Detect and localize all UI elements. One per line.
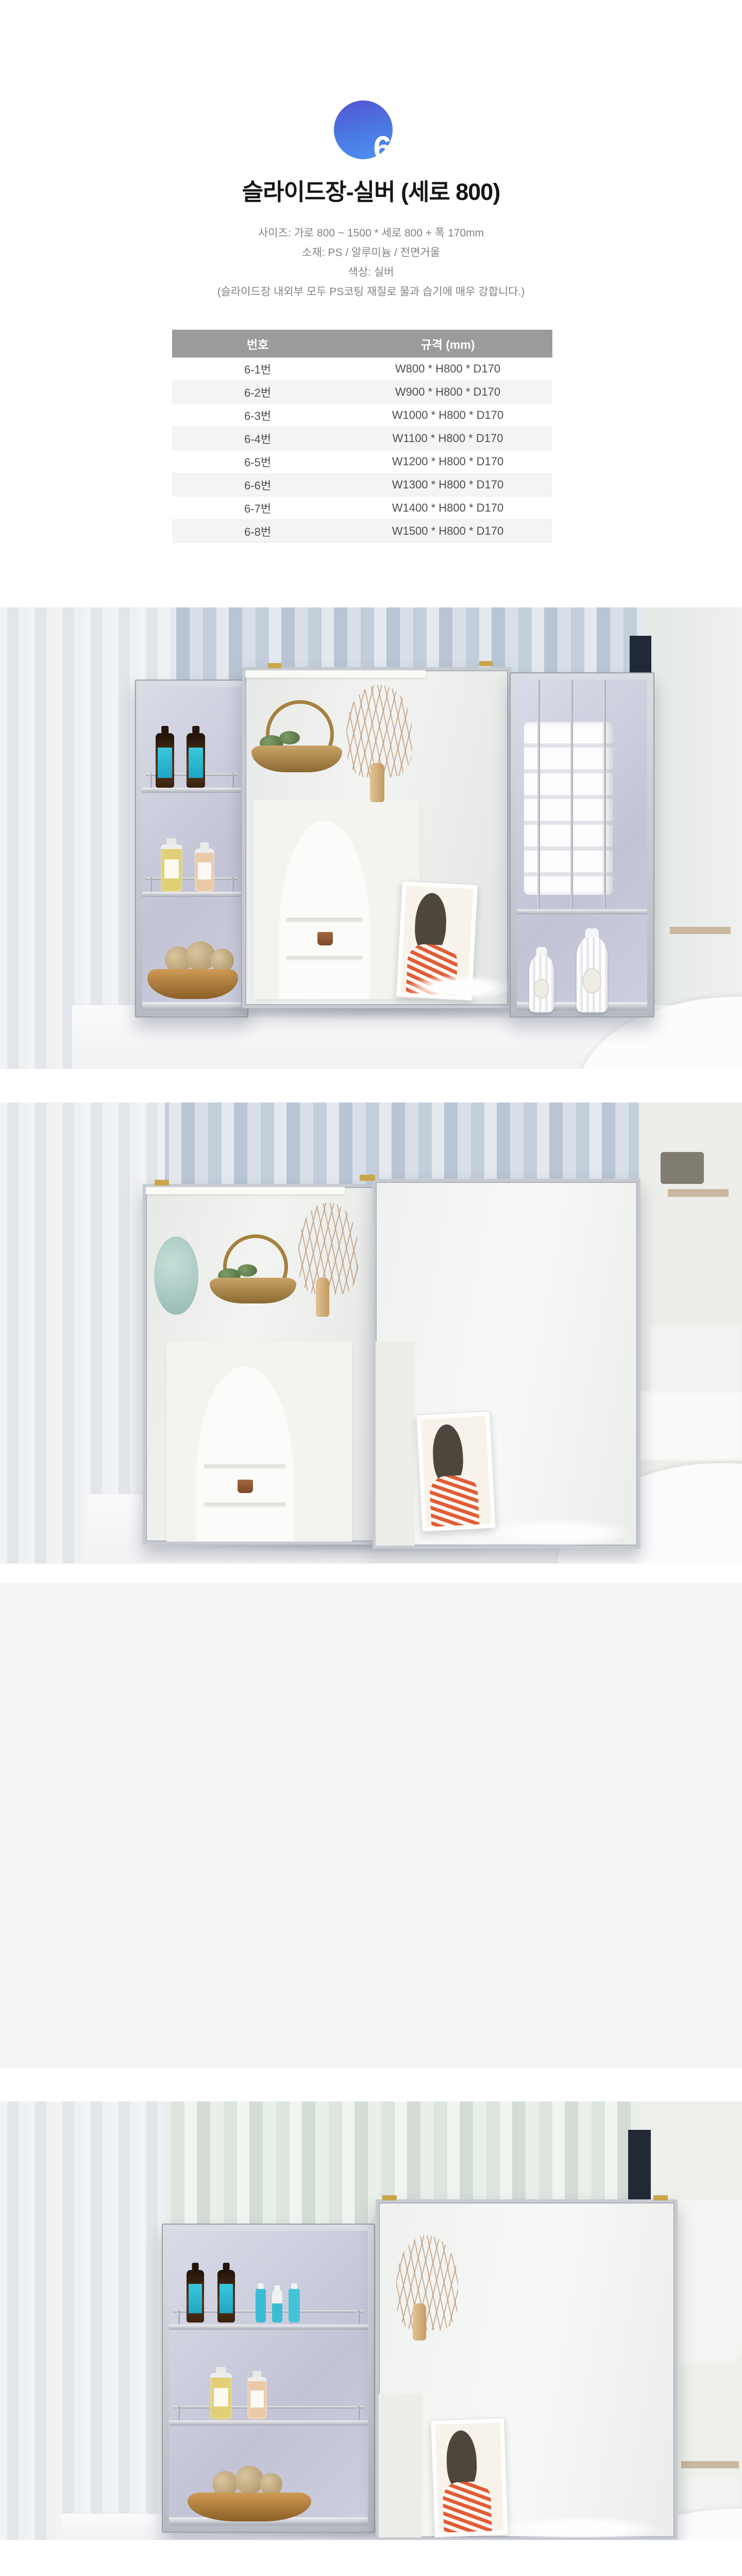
gold-hinge [653, 2195, 668, 2200]
number-badge: 6 [334, 100, 393, 159]
cell-size: W1200 * H800 * D170 [343, 455, 552, 468]
potted-plant [238, 1480, 253, 1493]
oval-mirror-reflection [154, 1236, 198, 1315]
table-row: 6-6번W1300 * H800 * D170 [172, 473, 552, 497]
open-shelf-unit-right [510, 672, 654, 1018]
product-detail-page: 6 슬라이드장-실버 (세로 800) 사이즈: 가로 800 ~ 1500 *… [0, 0, 742, 2576]
page-title: 슬라이드장-실버 (세로 800) [0, 173, 742, 207]
gold-hinge [479, 661, 493, 666]
cell-size: W900 * H800 * D170 [343, 385, 552, 399]
wire-rail [173, 2406, 364, 2409]
shelf [169, 2325, 368, 2330]
open-shelf-unit-left [135, 680, 248, 1018]
desc-line-color: 색상: 실버 [0, 263, 742, 282]
product-photo-left-open [0, 2102, 742, 2540]
amber-bottle [217, 2270, 235, 2323]
arch-shelf [286, 918, 363, 921]
cell-size: W1400 * H800 * D170 [343, 501, 552, 515]
mirror-door-left [143, 1184, 377, 1545]
table-row: 6-8번W1500 * H800 * D170 [172, 520, 552, 543]
cell-no: 6-1번 [172, 361, 343, 377]
table-row: 6-4번W1100 * H800 * D170 [172, 427, 552, 450]
cell-no: 6-6번 [172, 477, 343, 493]
amber-bottle [187, 733, 205, 788]
peach-bottle [195, 849, 214, 892]
unit-interior [517, 680, 647, 1010]
wooden-bowl [188, 2493, 311, 2521]
gold-hinge [268, 663, 281, 668]
basket-bowl [210, 1278, 296, 1303]
window-frame-dark [628, 2130, 651, 2199]
fur-rug [486, 1520, 630, 1546]
gold-hinge [360, 1175, 375, 1181]
flower-vase [413, 2303, 426, 2341]
picture-art [435, 2422, 503, 2533]
cell-no: 6-8번 [172, 523, 343, 539]
desc-line-material: 소재: PS / 알루미늄 / 전면거울 [0, 243, 742, 263]
ceramic-vase-small [529, 955, 554, 1012]
twine-ball [235, 2466, 264, 2495]
cell-no: 6-5번 [172, 453, 343, 470]
potted-plant [317, 932, 333, 945]
table-row: 6-7번W1400 * H800 * D170 [172, 497, 552, 520]
curtain-sheer-left [0, 2102, 165, 2540]
basket-bowl [251, 745, 342, 772]
towel-rail [570, 680, 573, 909]
mirror-door-right [376, 2199, 678, 2540]
spec-table: 번호 규격 (mm) 6-1번W800 * H800 * D170 6-2번W9… [172, 330, 552, 543]
mantel-ledge [245, 670, 426, 677]
flower-vase [316, 1278, 329, 1317]
table-row: 6-2번W900 * H800 * D170 [172, 381, 552, 404]
badge-number: 6 [373, 131, 392, 164]
amber-bottle [187, 2270, 204, 2323]
shelf [169, 2420, 368, 2426]
unit-interior [142, 687, 241, 1010]
greenery [238, 1264, 257, 1277]
wall-bracket [681, 2461, 739, 2468]
flower-vase [370, 763, 384, 802]
desc-line-size: 사이즈: 가로 800 ~ 1500 * 세로 800 + 폭 170mm [0, 224, 742, 243]
spec-col-number: 번호 [172, 335, 343, 352]
wall-bracket [670, 927, 731, 934]
cell-size: W1500 * H800 * D170 [343, 524, 552, 538]
gold-hinge [155, 1180, 169, 1185]
product-photo-open-both [0, 607, 742, 1069]
open-shelf-unit-left [162, 2224, 375, 2533]
cell-size: W1000 * H800 * D170 [343, 409, 552, 422]
arch-shelf [204, 1502, 285, 1506]
cell-no: 6-2번 [172, 384, 343, 400]
arch-shelf [204, 1464, 285, 1468]
spec-col-size: 규격 (mm) [343, 335, 552, 352]
cell-size: W1100 * H800 * D170 [343, 432, 552, 445]
cell-no: 6-3번 [172, 407, 343, 423]
table-row: 6-3번W1000 * H800 * D170 [172, 404, 552, 427]
ceramic-vase-tall [577, 936, 608, 1012]
mantel-edge-reflection [379, 2393, 422, 2537]
cell-no: 6-7번 [172, 500, 343, 516]
cell-size: W800 * H800 * D170 [343, 362, 552, 376]
cell-size: W1300 * H800 * D170 [343, 478, 552, 492]
table-row: 6-5번W1200 * H800 * D170 [172, 450, 552, 473]
mirror-door-center [242, 667, 511, 1008]
picture-frame [416, 1411, 496, 1532]
towel-rail [603, 680, 606, 909]
white-drape [672, 2199, 742, 2364]
dried-flowers [396, 2235, 458, 2330]
wall-bracket [668, 1189, 729, 1197]
teal-spray-bottle [272, 2291, 282, 2323]
wire-rail [145, 877, 238, 880]
yellow-bottle [210, 2373, 232, 2419]
dimension-diagram-section: 1200 800 220 220 220 580 340 580 340 580… [0, 1583, 742, 2068]
shelf-base [142, 1002, 241, 1010]
peach-bottle [247, 2377, 267, 2419]
towel-rail [537, 680, 540, 909]
shelf [142, 892, 241, 897]
arch-shelf [286, 956, 363, 959]
fur-rug [408, 975, 511, 1000]
wooden-bowl [147, 969, 238, 999]
shelf [517, 909, 647, 914]
cell-no: 6-4번 [172, 430, 343, 447]
mirror-door-right [373, 1179, 640, 1549]
product-description: 사이즈: 가로 800 ~ 1500 * 세로 800 + 폭 170mm 소재… [0, 224, 742, 302]
teal-spray-bottle [289, 2289, 300, 2323]
spec-table-header: 번호 규격 (mm) [172, 330, 552, 358]
mantel-edge-reflection [376, 1342, 415, 1546]
shelf [142, 788, 241, 793]
greenery [279, 731, 300, 744]
table-row: 6-1번W800 * H800 * D170 [172, 358, 552, 381]
unit-interior [169, 2231, 368, 2526]
amber-bottle [156, 733, 174, 788]
picture-art [421, 1416, 492, 1527]
picture-frame [430, 2418, 509, 2538]
desc-line-note: (슬라이드장 내외부 모두 PS코팅 재질로 물과 습기에 매우 강합니다.) [0, 282, 742, 302]
mantel-ledge [146, 1187, 345, 1194]
gold-hinge [382, 2195, 397, 2200]
teal-spray-bottle [256, 2289, 266, 2323]
yellow-bottle [161, 844, 182, 892]
product-photo-closed [0, 1103, 742, 1564]
fur-rug [502, 2517, 657, 2540]
woven-stool [661, 1152, 704, 1184]
